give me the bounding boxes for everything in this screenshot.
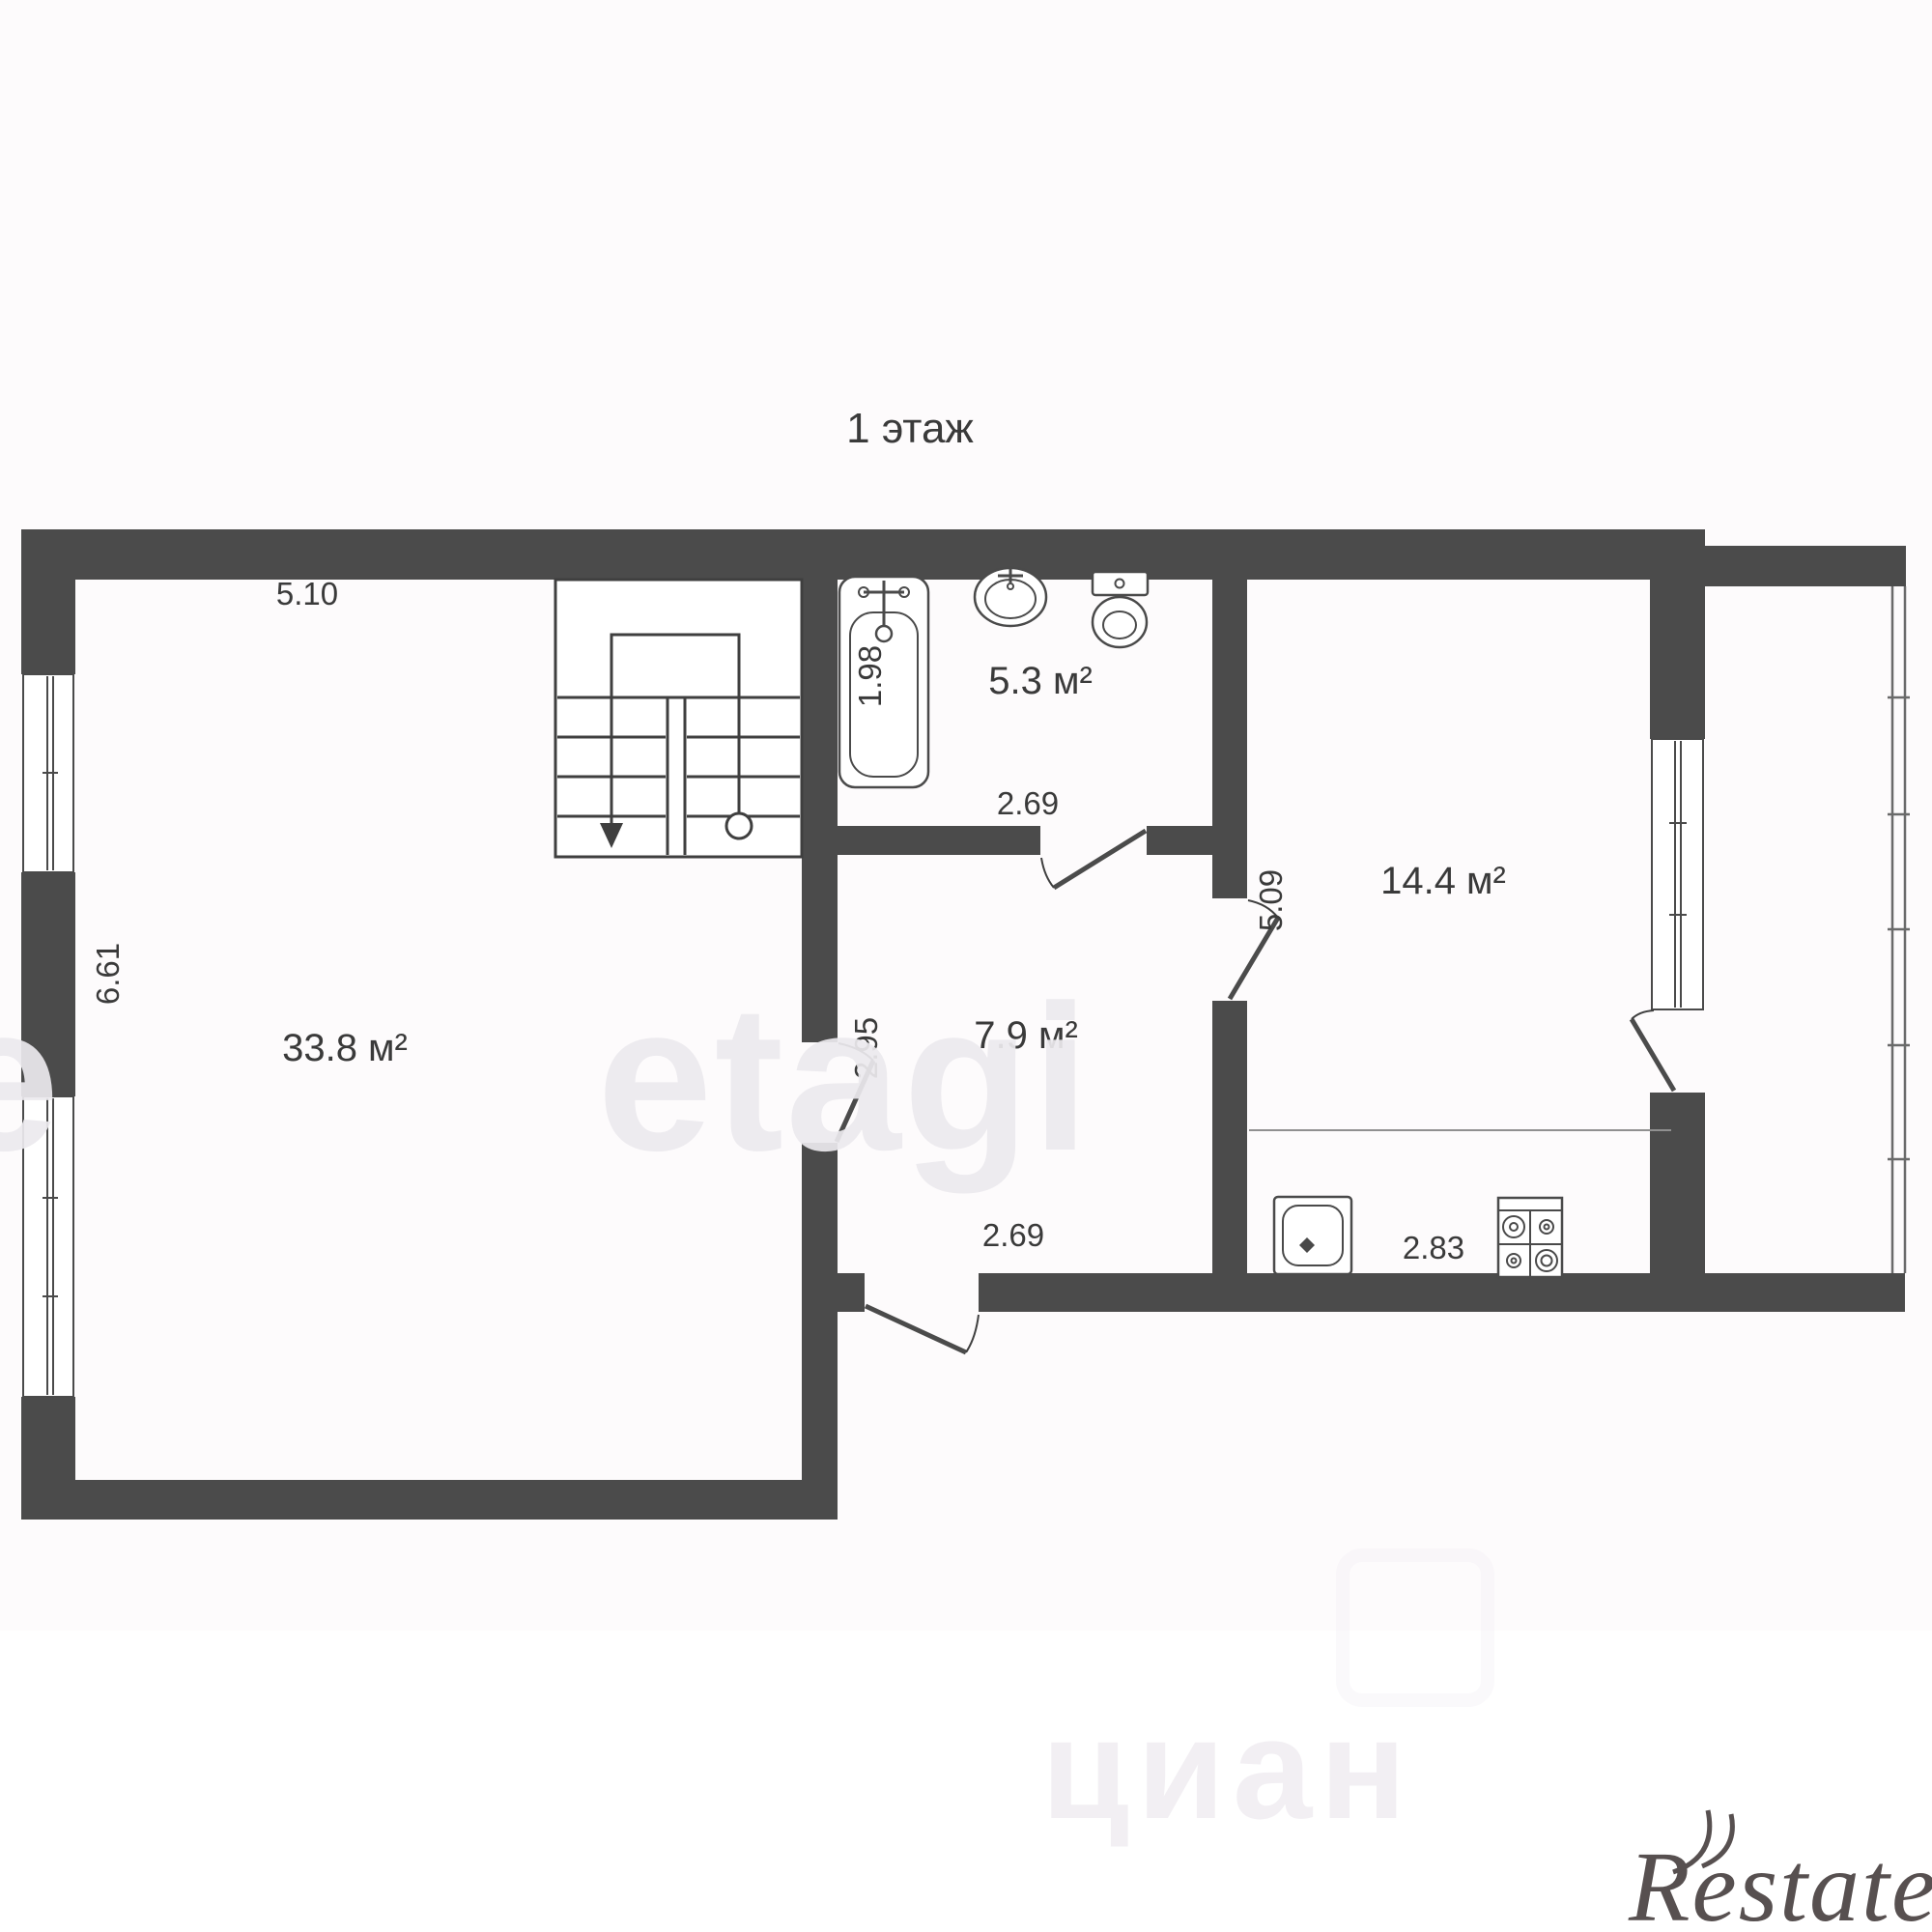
toilet-bowl xyxy=(1093,597,1147,647)
wall-segment xyxy=(1212,578,1247,898)
stair-start-marker xyxy=(726,813,752,838)
floor-plan-canvas: 1 этаж 33.8 м² 5.3 м² 7.9 м² 14.4 м² 5.1… xyxy=(0,0,1932,1932)
dim-living-height: 6.61 xyxy=(90,943,126,1005)
room-area-living: 33.8 м² xyxy=(282,1027,408,1069)
staircase xyxy=(555,580,802,857)
dim-living-width: 5.10 xyxy=(276,576,338,611)
wall-segment xyxy=(1212,1001,1247,1273)
window-living-upper xyxy=(23,674,73,872)
watermark-cian: циан xyxy=(1041,1690,1414,1849)
dim-tub-length: 1.98 xyxy=(852,645,888,707)
dim-kitchen-width: 2.83 xyxy=(1403,1230,1464,1265)
wall-segment xyxy=(1650,1093,1705,1273)
wall-segment xyxy=(979,1273,1905,1312)
restate-logo-text: Restate xyxy=(1628,1832,1932,1932)
wall-segment xyxy=(21,529,1705,580)
window-kitchen-balcony xyxy=(1652,739,1703,1009)
watermark-etagi-partial: e xyxy=(0,961,62,1194)
wall-segment xyxy=(838,826,1040,855)
room-area-kitchen: 14.4 м² xyxy=(1380,860,1506,902)
kitchen-sink-outer xyxy=(1274,1197,1351,1274)
wall-segment xyxy=(21,529,75,674)
toilet-tank xyxy=(1093,572,1148,595)
floor-title: 1 этаж xyxy=(846,405,974,452)
dim-bathroom-width: 2.69 xyxy=(997,785,1059,821)
room-area-bathroom: 5.3 м² xyxy=(988,660,1093,702)
sink-drain xyxy=(1008,583,1013,589)
wall-segment xyxy=(1705,546,1906,586)
dim-kitchen-height: 5.09 xyxy=(1253,869,1289,931)
kitchen-sink xyxy=(1274,1197,1351,1274)
toilet xyxy=(1093,572,1148,647)
wall-segment xyxy=(802,1143,838,1520)
window-frame xyxy=(1652,739,1703,1009)
stove xyxy=(1498,1198,1562,1277)
wall-segment xyxy=(21,1480,838,1520)
wall-segment xyxy=(1650,578,1705,739)
bathroom-sink xyxy=(975,568,1046,626)
wall-segment xyxy=(838,1273,865,1312)
dim-hall-width: 2.69 xyxy=(982,1217,1044,1253)
watermark-etagi: etagi xyxy=(597,961,1092,1194)
floorplan-image: 1 этаж 33.8 м² 5.3 м² 7.9 м² 14.4 м² 5.1… xyxy=(0,0,1932,1932)
wall-segment xyxy=(1147,826,1212,855)
